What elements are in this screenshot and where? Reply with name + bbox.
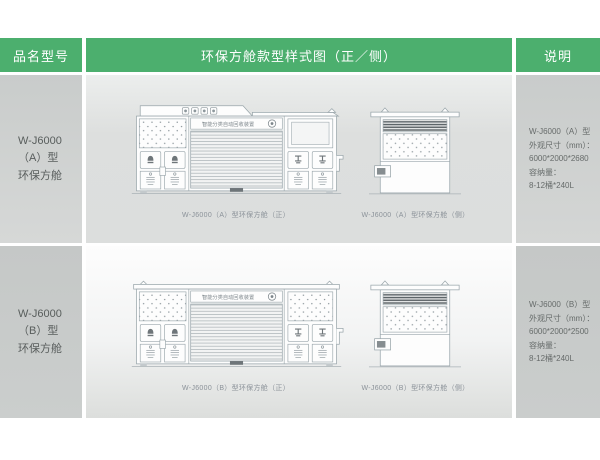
roof-slab (133, 284, 339, 289)
front-figure-a: 智能分类自动回收装置 (129, 99, 344, 220)
product-table: 品名型号 环保方舱款型样式图（正／侧） 说明 W-J6000（A）型 环保方舱 (0, 38, 600, 418)
louver-vent (384, 292, 448, 304)
banner-text: 智能分类自动回收装置 (202, 119, 254, 127)
side-bracket (336, 328, 343, 344)
label-panel (287, 171, 308, 189)
spec-capacity-label: 容纳量： (529, 166, 596, 180)
roof-slab (371, 112, 459, 117)
spec-capacity-value: 8-12桶*240L (529, 352, 596, 366)
side-view-drawing-b (367, 272, 463, 380)
front-caption: W-J6000（B）型环保方舱（正） (182, 383, 290, 393)
roller-shutter (190, 131, 282, 188)
front-figure-b: 智能分类自动回收装置 (129, 272, 344, 393)
foot (140, 190, 147, 192)
banner-text: 智能分类自动回收装置 (202, 292, 254, 300)
side-bracket (336, 155, 343, 171)
diagram-cell-a: 智能分类自动回收装置 (86, 75, 512, 243)
roller-shutter (190, 304, 282, 361)
dots-panel (384, 133, 448, 158)
front-view-drawing-a: 智能分类自动回收装置 (129, 99, 344, 207)
header-model-label: 品名型号 (13, 46, 69, 65)
control-box (159, 340, 165, 348)
label-panel (312, 344, 333, 362)
model-name-line2: 环保方舱 (18, 168, 82, 185)
bell-icon (147, 328, 153, 335)
banner-logo-dot (270, 122, 273, 125)
bell-icon (171, 155, 177, 162)
label-panel (140, 171, 161, 189)
diagram-cell-b: 智能分类自动回收装置 (86, 246, 512, 418)
header-diagram-label: 环保方舱款型样式图（正／侧） (201, 46, 397, 65)
bell-icon (171, 328, 177, 335)
banner-logo-dot (270, 295, 273, 298)
spec-cell-a: W-J6000（A）型 外观尺寸（mm）： 6000*2000*2680 容纳量… (516, 75, 600, 243)
dots-panel (139, 118, 186, 147)
spec-model: W-J6000（A）型 (529, 125, 596, 139)
dots-panel (287, 291, 332, 320)
model-name-line1: W-J6000（B）型 (18, 306, 82, 340)
model-name-line1: W-J6000（A）型 (18, 133, 82, 167)
label-panel (140, 344, 161, 362)
spec-cell-b: W-J6000（B）型 外观尺寸（mm）： 6000*2000*2500 容纳量… (516, 246, 600, 418)
front-caption: W-J6000（A）型环保方舱（正） (182, 210, 290, 220)
hook-icon (442, 107, 450, 111)
control-box-screen (377, 341, 385, 348)
shutter-handle (229, 188, 242, 192)
dots-panel (139, 291, 186, 320)
spec-capacity-value: 8-12桶*240L (529, 179, 596, 193)
louver-vent (384, 119, 448, 131)
bell-icon (147, 155, 153, 162)
header-note-label: 说明 (544, 46, 572, 65)
spec-size-label: 外观尺寸（mm）： (529, 312, 596, 326)
model-name-line2: 环保方舱 (18, 341, 82, 358)
side-figure-b: W-J6000（B）型环保方舱（侧） (362, 272, 470, 393)
roof-slab (371, 285, 459, 290)
spec-model: W-J6000（B）型 (529, 298, 596, 312)
spec-capacity-label: 容纳量： (529, 339, 596, 353)
dots-panel (384, 306, 448, 331)
label-panel (312, 171, 333, 189)
vent-window-inner (291, 122, 328, 144)
control-box-screen (377, 168, 385, 175)
hook-icon (326, 281, 333, 284)
foot (326, 363, 333, 365)
front-view-drawing-b: 智能分类自动回收装置 (129, 272, 344, 380)
spec-size-value: 6000*2000*2500 (529, 325, 596, 339)
header-diagram-column: 环保方舱款型样式图（正／侧） (86, 38, 512, 72)
model-cell-a: W-J6000（A）型 环保方舱 (0, 75, 82, 243)
model-cell-b: W-J6000（B）型 环保方舱 (0, 246, 82, 418)
hook-icon (382, 107, 390, 111)
label-panel (164, 171, 185, 189)
side-caption: W-J6000（B）型环保方舱（侧） (362, 383, 470, 393)
hook-icon (382, 280, 390, 284)
hook-icon (442, 280, 450, 284)
shutter-handle (229, 361, 242, 365)
label-panel (164, 344, 185, 362)
hook-icon (328, 108, 335, 112)
side-view-drawing-a (367, 99, 463, 207)
side-caption: W-J6000（A）型环保方舱（侧） (362, 210, 470, 220)
hook-icon (140, 281, 147, 284)
roof-right-slab (252, 112, 338, 116)
label-panel (287, 344, 308, 362)
header-model-column: 品名型号 (0, 38, 82, 72)
spec-size-label: 外观尺寸（mm）： (529, 139, 596, 153)
foot (326, 190, 333, 192)
side-figure-a: W-J6000（A）型环保方舱（侧） (362, 99, 470, 220)
control-box (159, 167, 165, 175)
header-note-column: 说明 (516, 38, 600, 72)
spec-size-value: 6000*2000*2680 (529, 152, 596, 166)
foot (140, 363, 147, 365)
